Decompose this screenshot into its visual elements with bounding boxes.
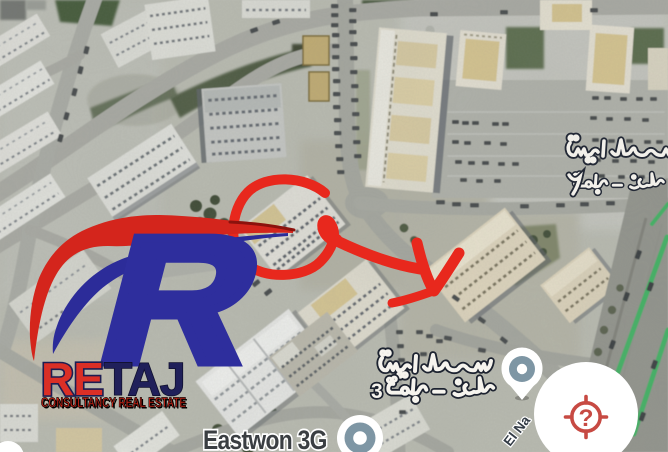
svg-text:3: 3 [371,380,383,403]
svg-text:Eastwon 3G: Eastwon 3G [203,426,327,452]
svg-text:?: ? [579,405,594,432]
svg-text:CONSULTANCY REAL ESTATE: CONSULTANCY REAL ESTATE [41,395,186,410]
